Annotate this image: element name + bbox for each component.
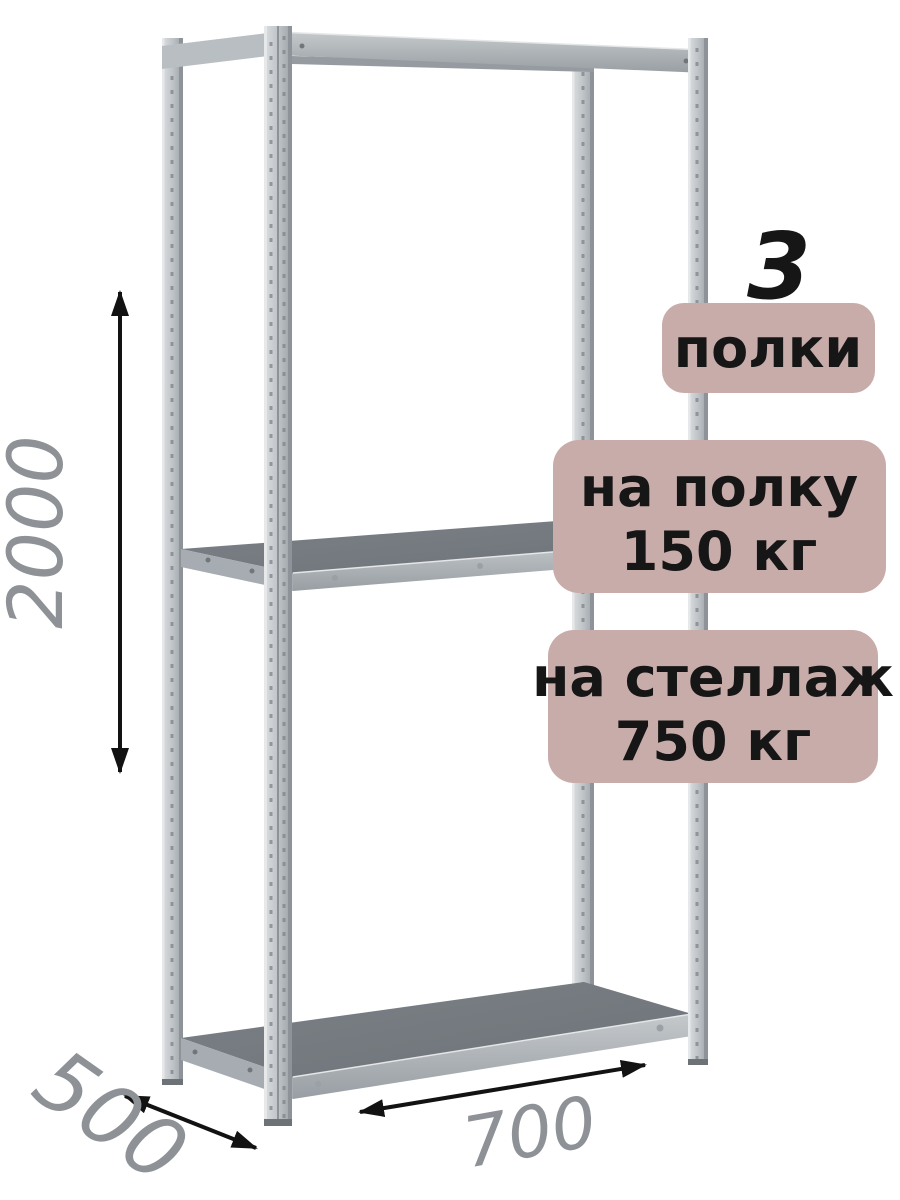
badge-shelf-count: полки: [662, 303, 875, 393]
product-image-canvas: 2000 500 700 3 полки на полку 150 кг на …: [0, 0, 900, 1200]
shelf-load-value: 150 кг: [621, 520, 817, 583]
rack-post-back-left: [162, 38, 183, 1085]
rack-load-value: 750 кг: [615, 710, 811, 773]
badge-shelf-load: на полку 150 кг: [553, 440, 886, 593]
height-dimension-label: 2000: [0, 435, 80, 628]
shelf-load-label: на полку: [580, 456, 858, 519]
dimension-width: 700: [360, 1065, 645, 1184]
shelf-count-unit-label: полки: [674, 317, 862, 380]
rack-post-front-left: [264, 26, 292, 1126]
rack-top-frame: [162, 32, 706, 73]
width-dimension-label: 700: [457, 1080, 603, 1184]
rack-shelf-bottom: [181, 982, 692, 1099]
rack-load-label: на стеллаж: [532, 646, 894, 709]
dimension-height: 2000: [0, 292, 120, 772]
product-illustration: 2000 500 700 3 полки на полку 150 кг на …: [0, 0, 900, 1200]
badge-rack-load: на стеллаж 750 кг: [532, 630, 894, 783]
